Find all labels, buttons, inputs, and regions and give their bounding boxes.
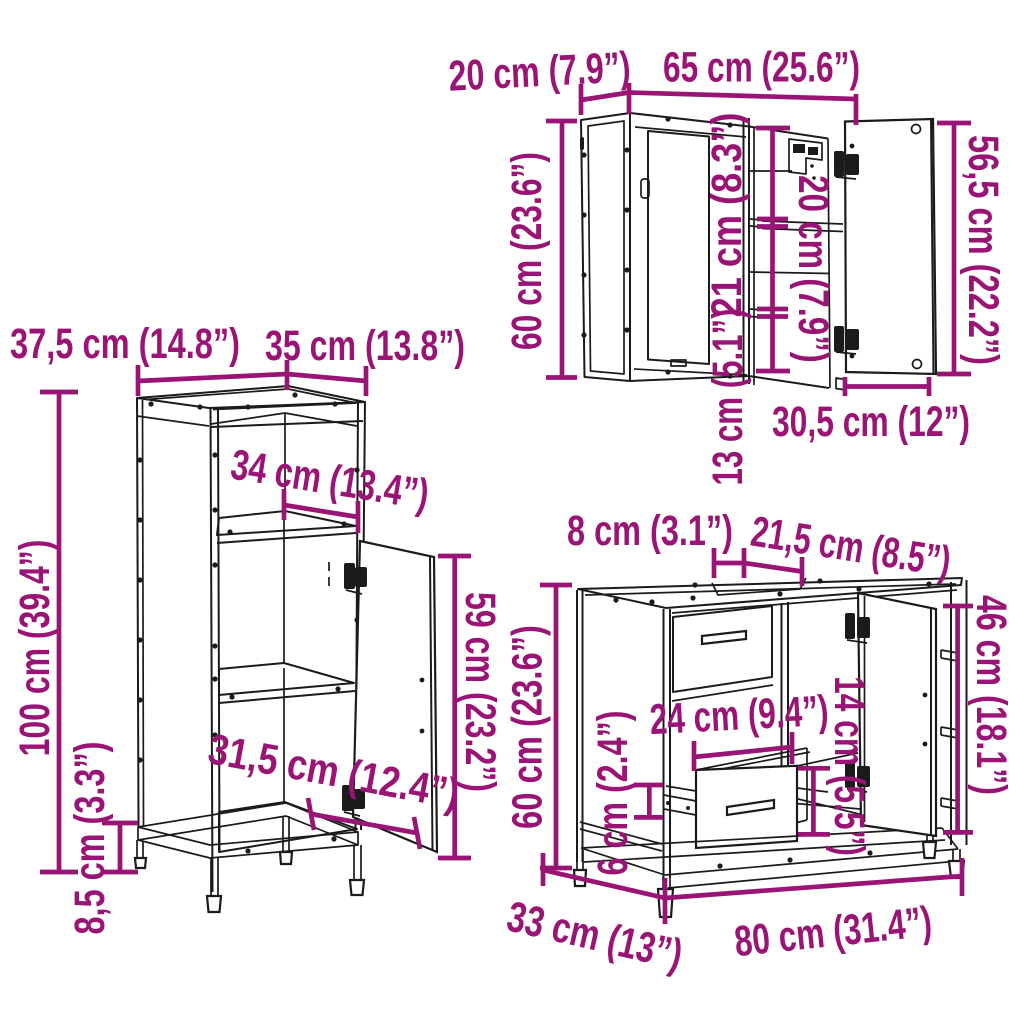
svg-text:14 cm (5.5”): 14 cm (5.5”): [825, 676, 873, 856]
svg-text:65 cm (25.6”): 65 cm (25.6”): [663, 43, 860, 91]
svg-text:46 cm (18.1”): 46 cm (18.1”): [967, 595, 1015, 795]
svg-text:8,5 cm (3.3”): 8,5 cm (3.3”): [67, 742, 114, 935]
svg-text:13 cm (5.1”): 13 cm (5.1”): [703, 309, 751, 486]
svg-text:20 cm (7.9”): 20 cm (7.9”): [447, 44, 631, 101]
svg-text:8 cm (3.1”): 8 cm (3.1”): [567, 508, 733, 555]
svg-text:6 cm (2.4”): 6 cm (2.4”): [590, 711, 638, 876]
svg-text:30,5 cm (12”): 30,5 cm (12”): [772, 398, 970, 446]
svg-text:35 cm (13.8”): 35 cm (13.8”): [265, 323, 465, 371]
svg-text:24 cm (9.4”): 24 cm (9.4”): [648, 686, 829, 743]
svg-text:56,5 cm (22.2”): 56,5 cm (22.2”): [959, 135, 1007, 365]
svg-text:60 cm (23.6”): 60 cm (23.6”): [503, 152, 551, 350]
svg-text:20 cm (7.9”): 20 cm (7.9”): [789, 175, 837, 363]
svg-text:37,5 cm (14.8”): 37,5 cm (14.8”): [10, 320, 240, 368]
svg-text:100 cm (39.4”): 100 cm (39.4”): [12, 540, 60, 757]
svg-text:21 cm (8.3”): 21 cm (8.3”): [703, 113, 751, 318]
svg-text:60 cm (23.6”): 60 cm (23.6”): [503, 625, 551, 829]
svg-text:59 cm (23.2”): 59 cm (23.2”): [456, 592, 504, 792]
